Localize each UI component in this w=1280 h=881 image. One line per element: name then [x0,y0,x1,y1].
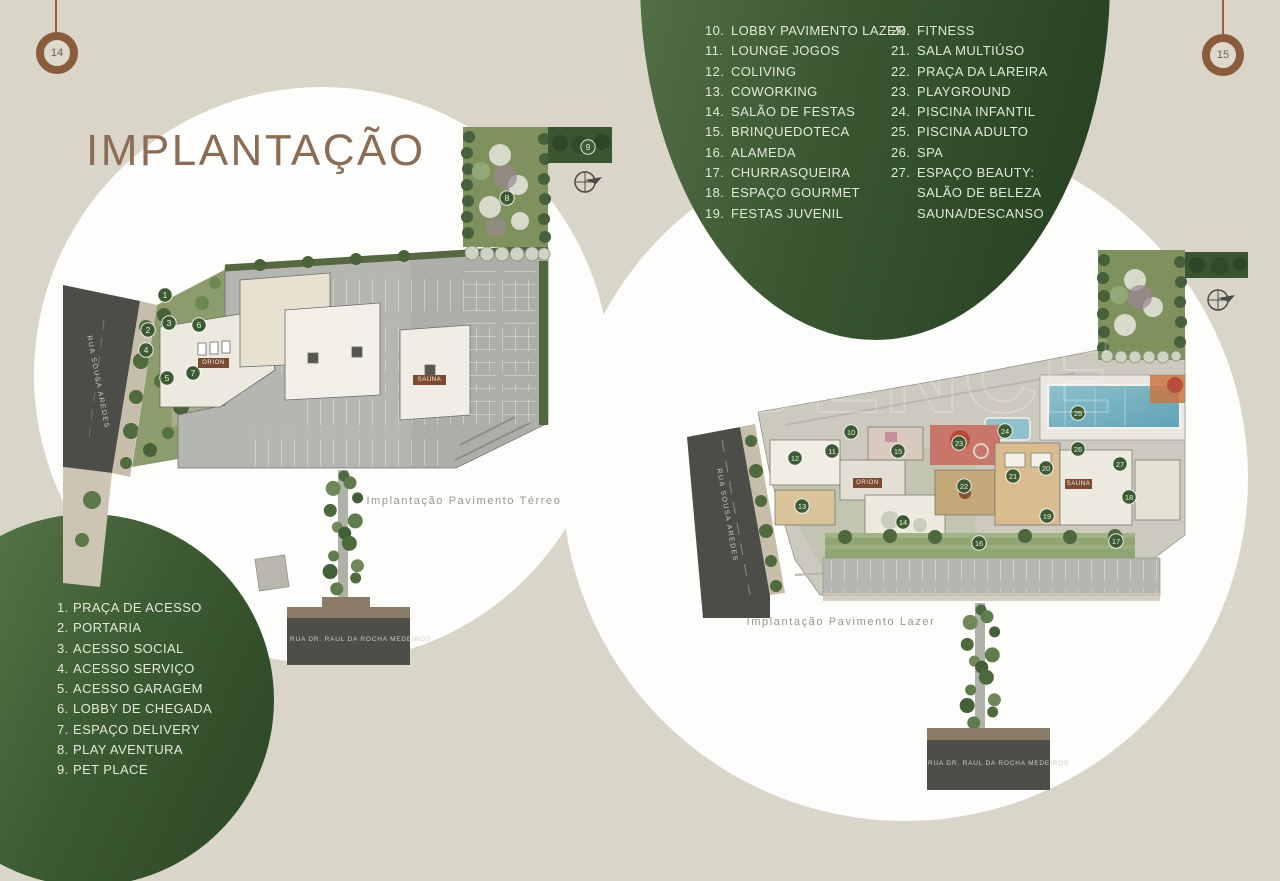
legend-leisure-col1: 10.LOBBY PAVIMENTO LAZER11.LOUNGE JOGOS1… [705,21,906,224]
legend-item-number [891,204,917,224]
legend-item: 2.PORTARIA [57,618,212,638]
pet-place-strip [548,127,612,163]
legend-item-label: COWORKING [731,82,818,102]
small-structure [255,555,289,591]
bush [960,698,975,713]
legend-item-label: PET PLACE [73,760,148,780]
page-title: IMPLANTAÇÃO [86,126,426,176]
legend-item: 13.COWORKING [705,82,906,102]
plan-marker-number: 14 [899,518,907,527]
tower-label-orion-terreo: ORION [198,358,229,368]
plan-marker-number: 16 [975,539,983,548]
plan-marker-number: 13 [798,502,806,511]
plan-marker-number: 12 [791,454,799,463]
legend-item-number: 27. [891,163,917,183]
legend-item-number: 23. [891,82,917,102]
legend-item-number: 12. [705,62,731,82]
bush [351,559,364,572]
legend-item-number [891,183,917,203]
legend-item-label: LOBBY DE CHEGADA [73,699,212,719]
legend-item: 18.ESPAÇO GOURMET [705,183,906,203]
legend-item-number: 9. [57,760,73,780]
legend-item: 26.SPA [891,143,1048,163]
legend-item: SAUNA/DESCANSO [891,204,1048,224]
legend-item-number: 4. [57,659,73,679]
legend-item: SALÃO DE BELEZA [891,183,1048,203]
bush [965,684,976,695]
legend-item-number: 11. [705,41,731,61]
legend-item-number: 25. [891,122,917,142]
legend-item-label: ACESSO SOCIAL [73,639,184,659]
legend-item-number: 2. [57,618,73,638]
legend-item-label: LOBBY PAVIMENTO LAZER [731,21,906,41]
tree-alley [322,470,370,611]
caption-terreo: Implantação Pavimento Térreo [339,495,589,507]
legend-item: 17.CHURRASQUEIRA [705,163,906,183]
plan-marker-number: 3 [167,318,172,328]
brochure-page: EVIDENCE 14 15 IMPLANTAÇÃO 10.LOBBY PAVI… [0,0,1280,881]
legend-item-number: 1. [57,598,73,618]
bush [323,564,338,579]
site-plan-lazer: 101112131415161718192021222324252627 [675,225,1250,820]
site-plan-terreo: 123456789 [60,115,625,670]
legend-item-number: 21. [891,41,917,61]
bush [985,647,1000,662]
legend-item-number: 7. [57,720,73,740]
plan-marker-number: 22 [960,482,968,491]
legend-item: 23.PLAYGROUND [891,82,1048,102]
legend-item: 21.SALA MULTIÚSO [891,41,1048,61]
legend-item-label: ESPAÇO BEAUTY: [917,163,1034,183]
legend-item: 24.PISCINA INFANTIL [891,102,1048,122]
garden-strip-right [1185,252,1248,278]
plan-marker-number: 20 [1042,464,1050,473]
legend-item-number: 24. [891,102,917,122]
tower-label-orion-lazer: ORION [853,478,882,488]
legend-item: 3.ACESSO SOCIAL [57,639,212,659]
legend-item-label: ACESSO SERVIÇO [73,659,195,679]
legend-item: 19.FESTAS JUVENIL [705,204,906,224]
plan-marker-number: 4 [144,345,149,355]
legend-item-label: PLAY AVENTURA [73,740,183,760]
bush [987,707,998,718]
legend-item: 20.FITNESS [891,21,1048,41]
plan-marker-number: 8 [505,193,510,203]
plan-marker-number: 24 [1001,427,1009,436]
bush [328,550,339,561]
legend-item: 27.ESPAÇO BEAUTY: [891,163,1048,183]
page-number-right: 15 [1210,42,1236,68]
tower-label-sauna-lazer: SAUNA [1065,479,1092,489]
bush [979,670,994,685]
legend-item: 4.ACESSO SERVIÇO [57,659,212,679]
legend-item-number: 17. [705,163,731,183]
bush [989,626,1000,637]
bush [342,536,357,551]
plan-marker-number: 9 [586,142,591,152]
legend-item: 22.PRAÇA DA LAREIRA [891,62,1048,82]
legend-item-number: 20. [891,21,917,41]
legend-item-number: 13. [705,82,731,102]
legend-item-number: 26. [891,143,917,163]
plan-marker-number: 23 [955,439,963,448]
legend-item-number: 10. [705,21,731,41]
legend-item-label: ACESSO GARAGEM [73,679,203,699]
legend-item-label: SALÃO DE BELEZA [917,183,1042,203]
page-number-left: 14 [44,40,70,66]
page-marker-line-right [1222,0,1224,34]
legend-item-number: 14. [705,102,731,122]
legend-item-label: SPA [917,143,943,163]
plan-marker-number: 25 [1074,409,1082,418]
plan-marker-number: 6 [197,320,202,330]
play-garden [461,127,551,425]
plan-marker-number: 7 [191,368,196,378]
bush [961,638,974,651]
legend-item: 14.SALÃO DE FESTAS [705,102,906,122]
legend-item-label: CHURRASQUEIRA [731,163,850,183]
plan-marker-number: 19 [1043,512,1051,521]
plan-marker-number: 10 [847,428,855,437]
legend-item: 7.ESPAÇO DELIVERY [57,720,212,740]
plan-marker-number: 18 [1125,493,1133,502]
plan-marker-number: 2 [146,325,151,335]
legend-item-number: 3. [57,639,73,659]
legend-item-label: BRINQUEDOTECA [731,122,850,142]
legend-item-number: 5. [57,679,73,699]
plan-marker-number: 26 [1074,445,1082,454]
legend-item: 8.PLAY AVENTURA [57,740,212,760]
plan-marker-number: 1 [163,290,168,300]
legend-item: 25.PISCINA ADULTO [891,122,1048,142]
legend-access: 1.PRAÇA DE ACESSO2.PORTARIA3.ACESSO SOCI… [57,598,212,781]
legend-item: 5.ACESSO GARAGEM [57,679,212,699]
plan-marker-number: 17 [1112,537,1120,546]
compass-icon [575,172,602,192]
legend-item-label: SAUNA/DESCANSO [917,204,1044,224]
legend-leisure-col2: 20.FITNESS21.SALA MULTIÚSO22.PRAÇA DA LA… [891,21,1048,224]
legend-item-number: 16. [705,143,731,163]
legend-item-number: 6. [57,699,73,719]
legend-item-label: SALÃO DE FESTAS [731,102,855,122]
plan-marker-number: 27 [1116,460,1124,469]
legend-item-number: 15. [705,122,731,142]
street-label-terreo-bottom: RUA DR. RAUL DA ROCHA MEDEIROS [290,636,410,643]
plan-marker-number: 15 [894,447,902,456]
bush [343,476,356,489]
leisure-garden [1097,250,1187,363]
legend-item-label: LOUNGE JOGOS [731,41,840,61]
plan-marker-number: 11 [828,447,836,456]
legend-item: 6.LOBBY DE CHEGADA [57,699,212,719]
page-marker-line-left [55,0,57,33]
bush [980,610,993,623]
street-road-bottom [927,728,1050,790]
bush [988,693,1001,706]
legend-item-number: 8. [57,740,73,760]
legend-item-label: PISCINA ADULTO [917,122,1028,142]
legend-item: 1.PRAÇA DE ACESSO [57,598,212,618]
page-number-ring-14: 14 [36,32,78,74]
legend-item-label: PISCINA INFANTIL [917,102,1035,122]
page-number-ring-15: 15 [1202,34,1244,76]
legend-item: 12.COLIVING [705,62,906,82]
parking-band [823,558,1160,601]
legend-item: 11.LOUNGE JOGOS [705,41,906,61]
bush [348,513,363,528]
legend-item-number: 18. [705,183,731,203]
legend-item-label: COLIVING [731,62,796,82]
legend-item-number: 22. [891,62,917,82]
legend-item: 16.ALAMEDA [705,143,906,163]
legend-item-label: ALAMEDA [731,143,796,163]
tower-label-sauna-terreo: SAUNA [413,375,446,385]
legend-item-label: ESPAÇO GOURMET [731,183,860,203]
legend-item: 10.LOBBY PAVIMENTO LAZER [705,21,906,41]
legend-item-label: FITNESS [917,21,975,41]
legend-item-label: SALA MULTIÚSO [917,41,1025,61]
bush [967,716,980,729]
legend-item-number: 19. [705,204,731,224]
legend-item-label: PRAÇA DA LAREIRA [917,62,1048,82]
bush [326,481,341,496]
legend-item-label: ESPAÇO DELIVERY [73,720,200,740]
bush [350,573,361,584]
street-label-lazer-bottom: RUA DR. RAUL DA ROCHA MEDEIROS [928,760,1050,767]
compass-icon [1208,290,1235,310]
legend-item-label: PORTARIA [73,618,141,638]
caption-lazer: Implantação Pavimento Lazer [716,616,966,628]
legend-item: 15.BRINQUEDOTECA [705,122,906,142]
legend-item-label: PRAÇA DE ACESSO [73,598,202,618]
bush [330,582,343,595]
legend-item-label: FESTAS JUVENIL [731,204,843,224]
bush [324,504,337,517]
legend-item: 9.PET PLACE [57,760,212,780]
plan-marker-number: 5 [165,373,170,383]
legend-item-label: PLAYGROUND [917,82,1011,102]
plan-marker-number: 21 [1009,472,1017,481]
